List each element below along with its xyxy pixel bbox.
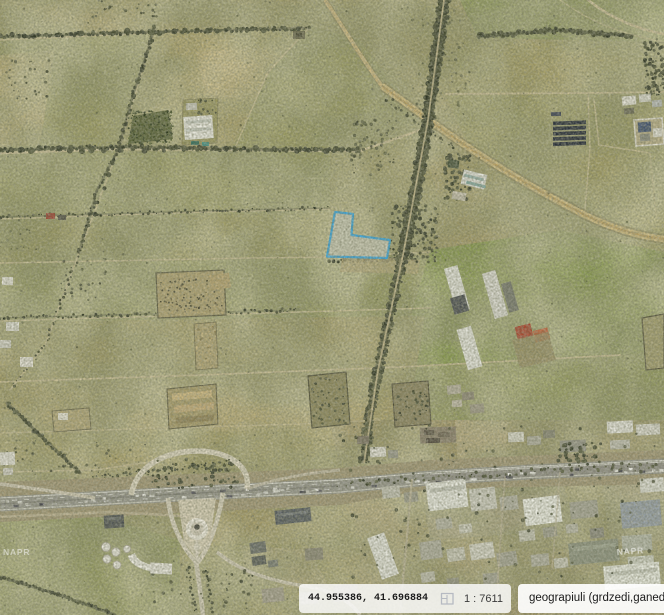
svg-text:NAPR: NAPR — [616, 545, 644, 557]
svg-text:NAPR: NAPR — [3, 547, 30, 557]
